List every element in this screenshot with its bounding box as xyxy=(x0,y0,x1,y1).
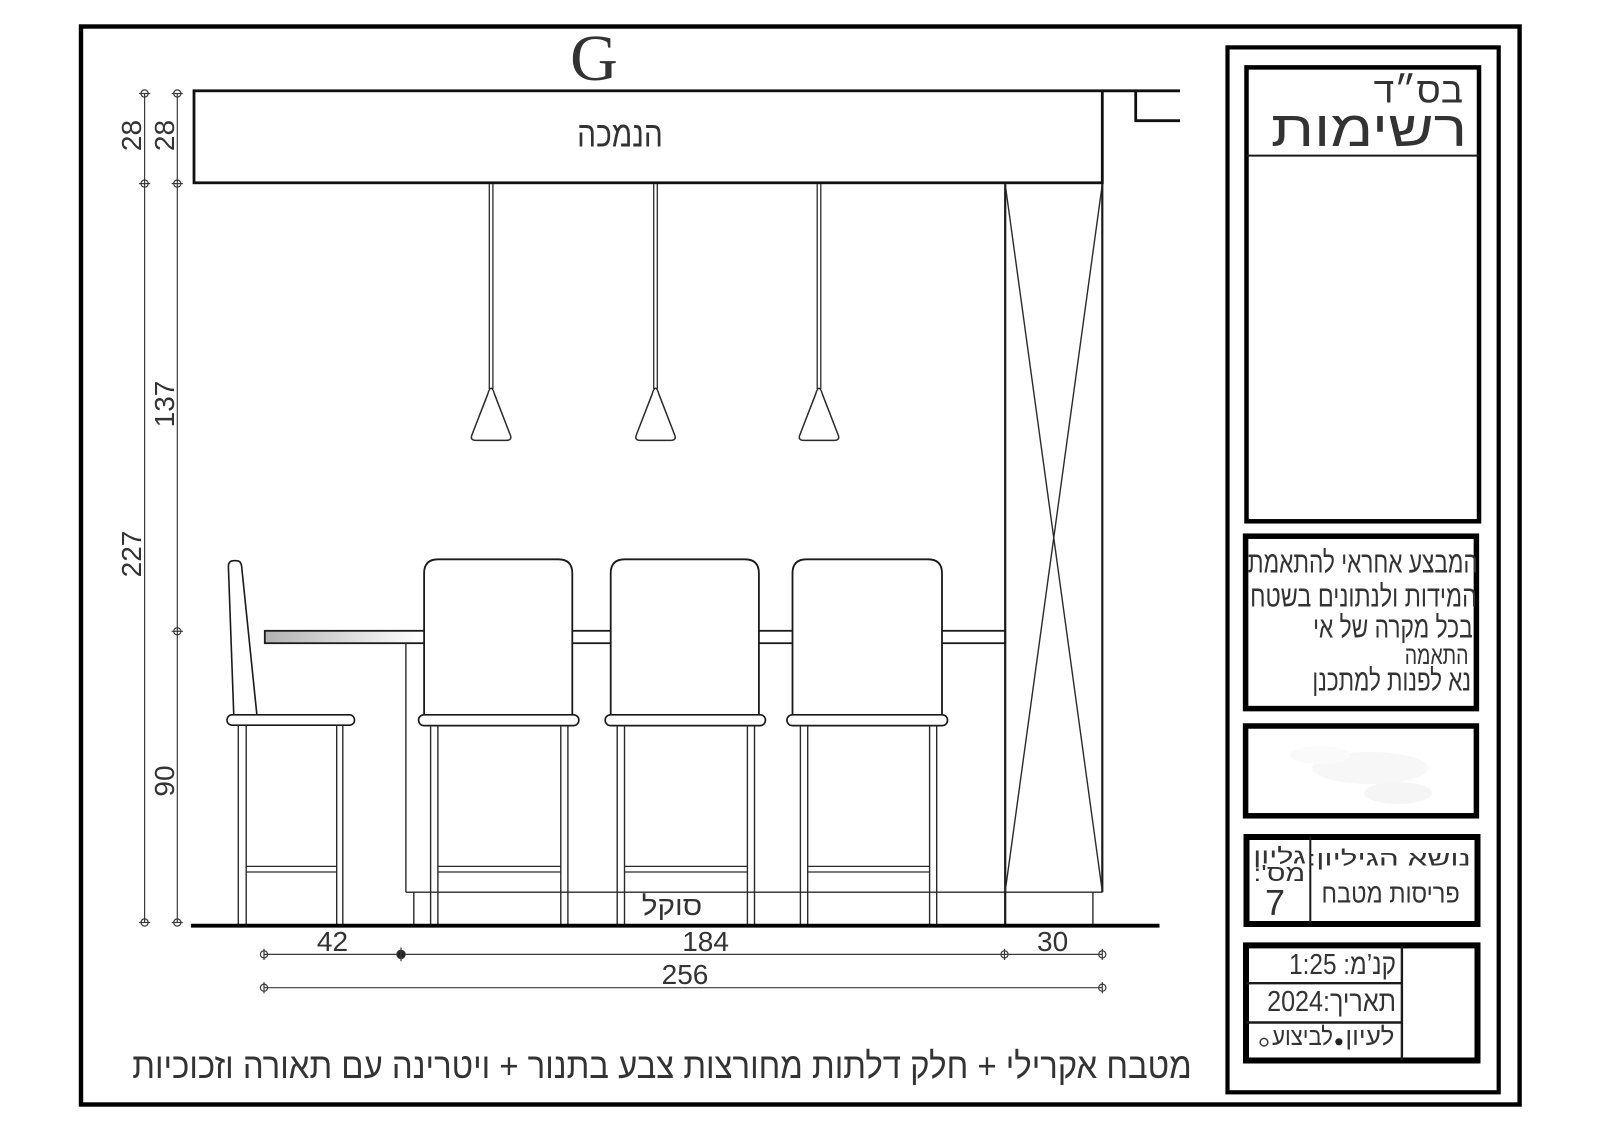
svg-text:30: 30 xyxy=(1037,926,1068,957)
svg-text:פריסות מטבח: פריסות מטבח xyxy=(1322,879,1460,909)
svg-text:42: 42 xyxy=(317,926,348,957)
svg-text:184: 184 xyxy=(682,926,729,957)
svg-text:קנ’מ: 1:25: קנ’מ: 1:25 xyxy=(1289,948,1396,980)
svg-text:נא לפנות למתכנן: נא לפנות למתכנן xyxy=(1312,663,1471,697)
svg-text:המבצע אחראי להתאמת: המבצע אחראי להתאמת xyxy=(1248,545,1478,579)
svg-text:סוקל: סוקל xyxy=(642,891,702,921)
svg-text:90: 90 xyxy=(149,765,180,796)
svg-text:7: 7 xyxy=(1265,882,1285,923)
svg-text:נושא הגיליון:: נושא הגיליון: xyxy=(1307,847,1470,871)
svg-text:הנמכה: הנמכה xyxy=(577,115,663,155)
svg-text:המידות ולנתונים בשטח: המידות ולנתונים בשטח xyxy=(1250,580,1477,613)
svg-text:מטבח אקרילי + חלק דלתות מחורצו: מטבח אקרילי + חלק דלתות מחורצות צבע בתנו… xyxy=(132,1047,1191,1087)
svg-text:תאריך:2024: תאריך:2024 xyxy=(1267,984,1396,1017)
svg-text:137: 137 xyxy=(149,381,180,428)
svg-text:לעיון: לעיון xyxy=(1345,1023,1394,1050)
svg-text:28: 28 xyxy=(149,120,180,151)
svg-text:256: 256 xyxy=(662,959,709,990)
svg-text:בכל מקרה של אי: בכל מקרה של אי xyxy=(1313,610,1473,644)
svg-text:G: G xyxy=(570,22,618,95)
svg-text:רשימות: רשימות xyxy=(1271,101,1467,157)
svg-text:227: 227 xyxy=(116,531,147,578)
svg-text:לביצוע: לביצוע xyxy=(1272,1024,1333,1052)
svg-text:28: 28 xyxy=(116,120,147,151)
